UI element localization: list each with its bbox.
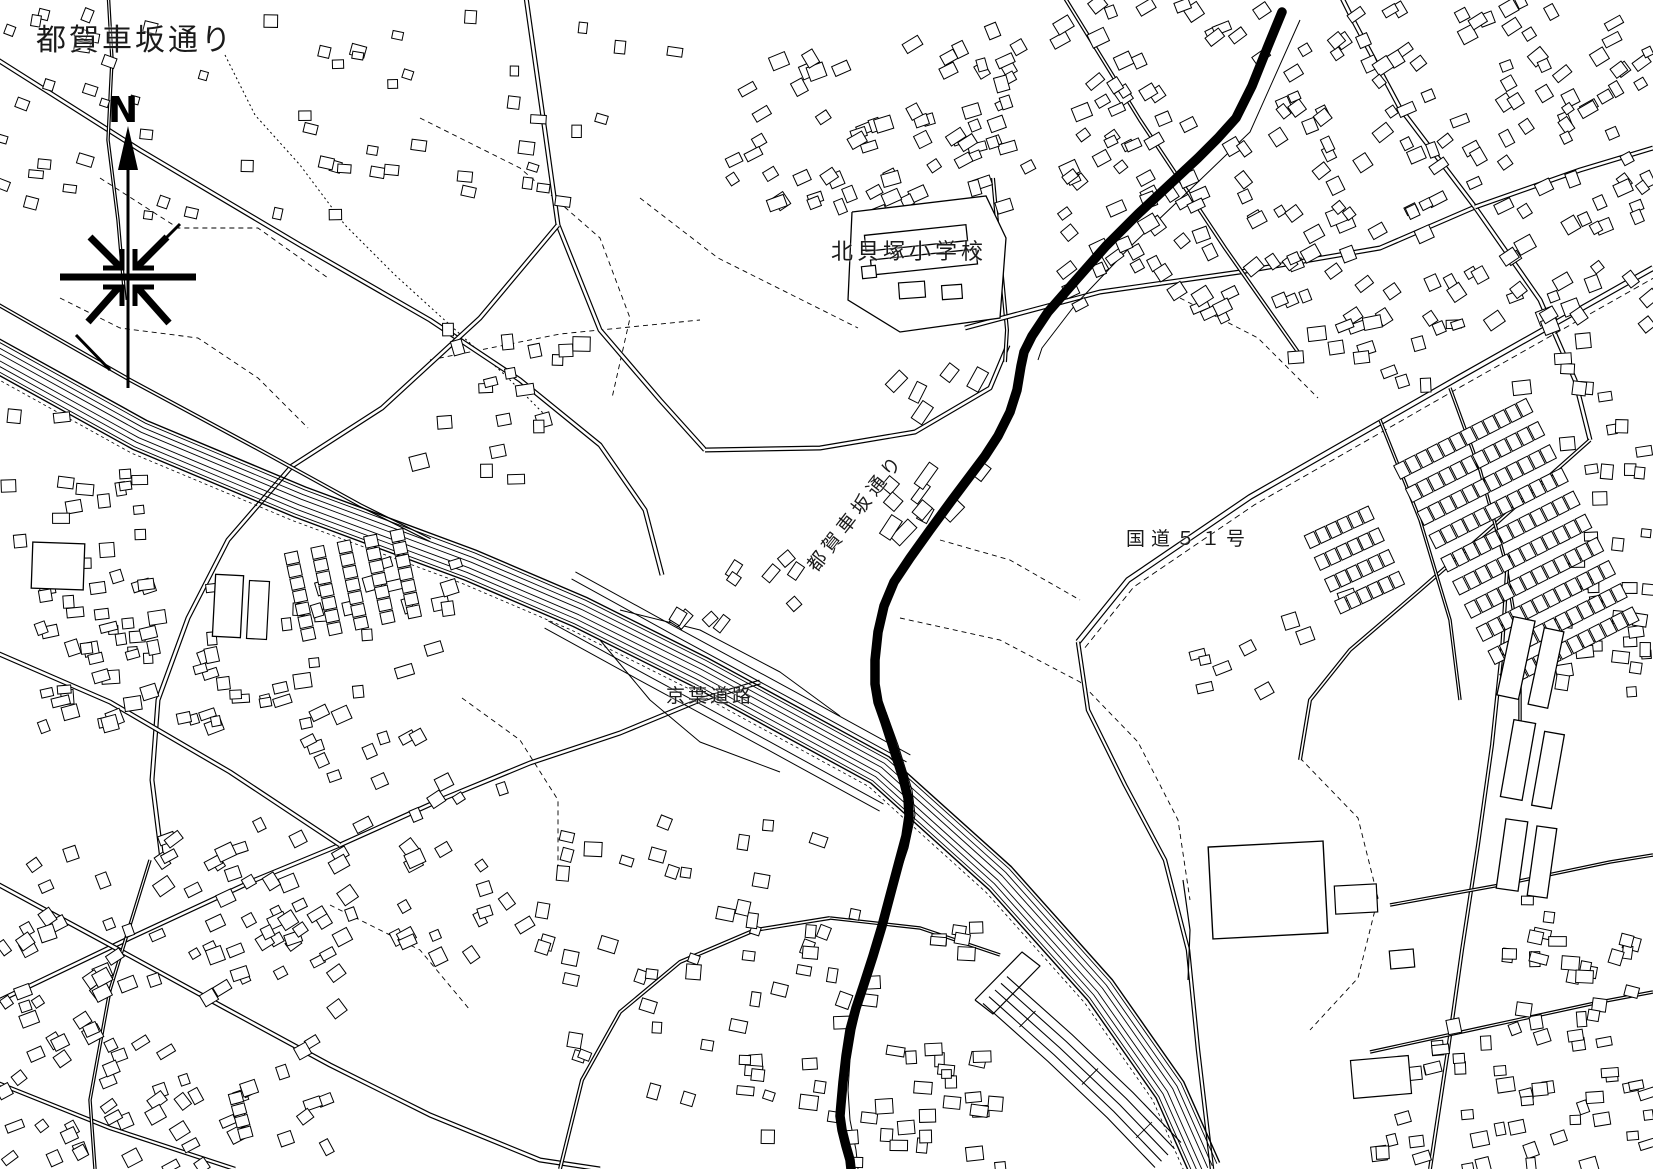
building (1432, 1044, 1450, 1055)
building (750, 992, 761, 1007)
building (337, 884, 359, 905)
building (441, 601, 455, 617)
building (572, 125, 582, 137)
building (28, 170, 43, 179)
building (1453, 1053, 1465, 1063)
building (890, 1140, 908, 1151)
building (1409, 1135, 1424, 1148)
building (534, 420, 545, 433)
building (1593, 1112, 1611, 1127)
building (157, 1044, 176, 1060)
building (1208, 841, 1328, 939)
building (1601, 1068, 1619, 1078)
building (1572, 381, 1587, 396)
building (1114, 160, 1128, 174)
building (1515, 1002, 1532, 1017)
building (518, 141, 535, 155)
building (1604, 15, 1623, 31)
building (886, 1045, 905, 1057)
building (345, 578, 360, 592)
building (1561, 363, 1575, 374)
building (463, 946, 480, 964)
building (1521, 896, 1533, 905)
building (735, 899, 751, 916)
building (331, 705, 352, 725)
building (348, 591, 363, 605)
building (0, 178, 10, 191)
building (309, 658, 320, 668)
building (63, 845, 79, 862)
building (0, 940, 11, 956)
building (1108, 102, 1125, 116)
building (322, 596, 337, 610)
building (210, 716, 221, 727)
building (1076, 128, 1090, 142)
building (1021, 160, 1036, 174)
building (476, 881, 492, 897)
building (364, 534, 379, 548)
building (954, 932, 970, 945)
building (647, 1083, 661, 1100)
building (1155, 111, 1172, 127)
highlighted-route-layer (840, 12, 1282, 1169)
building (1461, 1109, 1473, 1119)
building (1061, 224, 1079, 241)
building (1106, 200, 1126, 217)
building (1307, 326, 1326, 342)
building (799, 1094, 819, 1110)
building (101, 714, 119, 732)
building (135, 529, 146, 539)
building (995, 1162, 1006, 1169)
highlighted-route (840, 12, 1282, 1169)
building (988, 1096, 1004, 1111)
building (1527, 930, 1543, 945)
building (595, 113, 609, 124)
building (1, 1150, 18, 1165)
building (1376, 1146, 1389, 1159)
building (147, 640, 161, 656)
building (27, 1046, 45, 1062)
building (1095, 94, 1111, 108)
building (1552, 272, 1573, 291)
building (143, 211, 153, 220)
building (1328, 340, 1344, 355)
building (352, 685, 364, 698)
building (1521, 1096, 1534, 1106)
building (81, 8, 94, 23)
building (388, 79, 398, 88)
building (401, 579, 416, 593)
building (1555, 674, 1570, 691)
building (253, 817, 267, 832)
building (751, 1069, 765, 1082)
building (555, 196, 571, 208)
building (1255, 682, 1274, 700)
building (1424, 274, 1441, 292)
building (881, 188, 902, 206)
building (815, 110, 831, 125)
building (1386, 1133, 1398, 1146)
building (957, 947, 975, 961)
building (198, 70, 208, 80)
building (19, 1000, 32, 1013)
building (842, 185, 858, 202)
building (619, 855, 634, 867)
building (1136, 170, 1155, 187)
building (53, 1050, 71, 1068)
building (1253, 2, 1272, 20)
building (563, 973, 580, 987)
building (372, 572, 387, 586)
building (752, 105, 771, 122)
building (1502, 17, 1522, 36)
building (763, 820, 774, 831)
building (1494, 1122, 1506, 1136)
building (866, 184, 883, 199)
building (584, 842, 602, 857)
building (176, 712, 191, 725)
building (228, 1091, 243, 1105)
building (508, 474, 525, 484)
building (241, 160, 253, 172)
building (1446, 1018, 1462, 1035)
building (939, 62, 958, 79)
building (1389, 949, 1414, 969)
building (276, 1064, 290, 1080)
building (943, 1096, 961, 1110)
building (1587, 1009, 1600, 1021)
building (645, 969, 658, 980)
building (639, 998, 657, 1014)
building (370, 166, 386, 178)
building (241, 913, 256, 928)
building (515, 916, 535, 934)
building (1385, 105, 1398, 118)
building (573, 337, 591, 352)
building (287, 564, 302, 578)
building (914, 130, 932, 148)
building (805, 925, 816, 939)
building (390, 529, 405, 543)
building (560, 847, 574, 862)
school-label: 北貝塚小学校 (831, 242, 987, 264)
building (496, 413, 511, 426)
building (332, 60, 343, 69)
building (1638, 316, 1653, 333)
building (377, 598, 392, 612)
building (443, 323, 454, 336)
building (189, 948, 201, 960)
building (224, 866, 241, 882)
building (849, 909, 861, 921)
building (38, 589, 52, 603)
building (182, 1138, 200, 1153)
building (1104, 5, 1117, 19)
building (38, 159, 52, 170)
building (272, 681, 288, 694)
building (320, 947, 337, 961)
building (927, 159, 942, 173)
building (465, 10, 477, 24)
building (1600, 464, 1613, 479)
building (46, 1150, 63, 1167)
building (1529, 1015, 1543, 1030)
building (1596, 1036, 1612, 1047)
building (1602, 32, 1622, 48)
building (1202, 243, 1218, 261)
building (1355, 275, 1373, 292)
building (778, 550, 796, 568)
building (1499, 129, 1515, 147)
building (1589, 47, 1609, 66)
building (115, 633, 127, 645)
building (1535, 84, 1553, 102)
building (1426, 142, 1440, 159)
building (763, 1090, 776, 1101)
building (1550, 1130, 1567, 1145)
building (475, 859, 488, 872)
building (337, 164, 351, 173)
building (726, 172, 740, 186)
building (301, 627, 316, 641)
compass-sw-arm (88, 287, 119, 322)
building (119, 481, 132, 491)
building (394, 664, 414, 679)
building (914, 1081, 933, 1094)
building (204, 647, 220, 664)
map-title: 都賀車坂通り (36, 26, 234, 56)
building (411, 139, 427, 151)
building (1125, 138, 1142, 152)
building (1512, 380, 1531, 396)
building (392, 31, 404, 41)
building (556, 866, 569, 882)
building (319, 584, 334, 598)
building (273, 966, 287, 980)
building (95, 872, 111, 889)
building (1071, 102, 1092, 121)
compass-n-label: N (108, 90, 138, 131)
building (153, 876, 175, 897)
building (309, 704, 330, 721)
building (103, 918, 116, 931)
compass-ne-tail (158, 224, 180, 246)
building (1549, 937, 1567, 947)
building (680, 867, 691, 878)
building (398, 567, 413, 581)
building (290, 576, 305, 590)
building (99, 542, 115, 557)
building (496, 782, 508, 796)
building (942, 1070, 952, 1079)
building (481, 464, 493, 477)
building (561, 949, 579, 966)
building (1296, 627, 1315, 645)
building (716, 906, 735, 921)
building (327, 999, 347, 1019)
building (310, 603, 323, 618)
building (289, 830, 307, 848)
building (169, 1121, 190, 1141)
building (38, 880, 53, 894)
building (973, 1051, 991, 1063)
building (281, 618, 292, 631)
building (809, 833, 828, 848)
building (374, 585, 389, 599)
building (174, 1092, 191, 1110)
building (1247, 211, 1267, 229)
building (1553, 65, 1572, 83)
building (63, 595, 74, 608)
building (377, 731, 390, 745)
building (1238, 189, 1253, 204)
building (1058, 207, 1072, 220)
building (140, 683, 159, 701)
building (1243, 257, 1264, 277)
building (437, 415, 452, 429)
building (1196, 681, 1213, 693)
building (259, 697, 272, 707)
building (1239, 640, 1256, 656)
building (1585, 464, 1599, 475)
building (1298, 43, 1312, 57)
building (122, 923, 134, 937)
building (598, 935, 619, 953)
building (537, 183, 550, 193)
building (1144, 132, 1164, 150)
building (1088, 0, 1108, 14)
building (395, 554, 410, 568)
building (1467, 176, 1483, 189)
building (461, 185, 476, 198)
building (968, 119, 981, 132)
building (329, 209, 342, 219)
building (742, 950, 755, 961)
building (535, 902, 550, 919)
building (725, 152, 743, 167)
building (264, 15, 278, 28)
building (1400, 137, 1413, 151)
building (790, 78, 808, 97)
building (737, 834, 749, 850)
building (384, 164, 399, 175)
landmark-buildings-layer (31, 196, 1564, 1098)
building (898, 281, 925, 299)
building (1634, 77, 1648, 90)
building (366, 547, 381, 561)
building (404, 592, 419, 606)
building (311, 545, 326, 559)
building (885, 370, 907, 393)
building (1087, 27, 1109, 48)
building (1615, 420, 1628, 433)
building (1462, 1163, 1474, 1169)
building (701, 1039, 714, 1051)
building (1284, 64, 1304, 82)
building (435, 841, 452, 857)
building (1641, 529, 1651, 538)
building (292, 898, 307, 912)
building (15, 97, 30, 111)
building (367, 145, 379, 155)
building (1113, 51, 1134, 70)
building (61, 704, 80, 721)
building (965, 1092, 981, 1103)
building (1500, 75, 1516, 92)
building (965, 1146, 983, 1161)
building (861, 1112, 878, 1124)
building (1576, 970, 1594, 983)
building (1325, 263, 1342, 279)
building (1131, 53, 1147, 69)
building (522, 177, 533, 189)
building (133, 505, 144, 514)
building (1381, 365, 1398, 379)
building (362, 743, 377, 759)
building (1494, 1066, 1506, 1076)
building (802, 1058, 817, 1070)
building (448, 558, 462, 570)
building (816, 924, 831, 940)
building (148, 610, 167, 626)
building (527, 162, 539, 172)
building (64, 639, 80, 657)
building (1508, 1119, 1526, 1135)
building (1584, 274, 1602, 292)
building (1130, 259, 1144, 273)
building (1522, 27, 1537, 41)
building (299, 111, 311, 121)
building (1340, 245, 1357, 263)
building (318, 45, 331, 58)
building (273, 694, 292, 708)
building (157, 195, 170, 209)
building (657, 815, 672, 830)
compass-se-arm (137, 287, 169, 323)
building (528, 343, 542, 358)
building (303, 1096, 322, 1111)
building (498, 892, 515, 910)
building (295, 602, 310, 616)
building (1180, 117, 1198, 133)
building (1496, 1077, 1515, 1093)
building (65, 499, 82, 514)
building (138, 578, 155, 590)
buildings-layer (0, 0, 1653, 1169)
building (530, 115, 546, 124)
building (614, 40, 626, 54)
building (57, 685, 71, 694)
building (31, 995, 44, 1008)
building (925, 1043, 943, 1056)
building (1567, 1029, 1583, 1042)
building (440, 579, 459, 597)
building (652, 1022, 662, 1033)
building (1640, 643, 1650, 657)
building (1498, 155, 1513, 170)
north-compass: N (60, 90, 196, 388)
building (1544, 4, 1559, 21)
building (362, 629, 373, 641)
building (303, 123, 318, 135)
building (1480, 1036, 1491, 1050)
building (883, 492, 902, 511)
building (729, 1019, 748, 1034)
building (987, 115, 1006, 132)
building (434, 773, 454, 792)
building (162, 1159, 180, 1169)
